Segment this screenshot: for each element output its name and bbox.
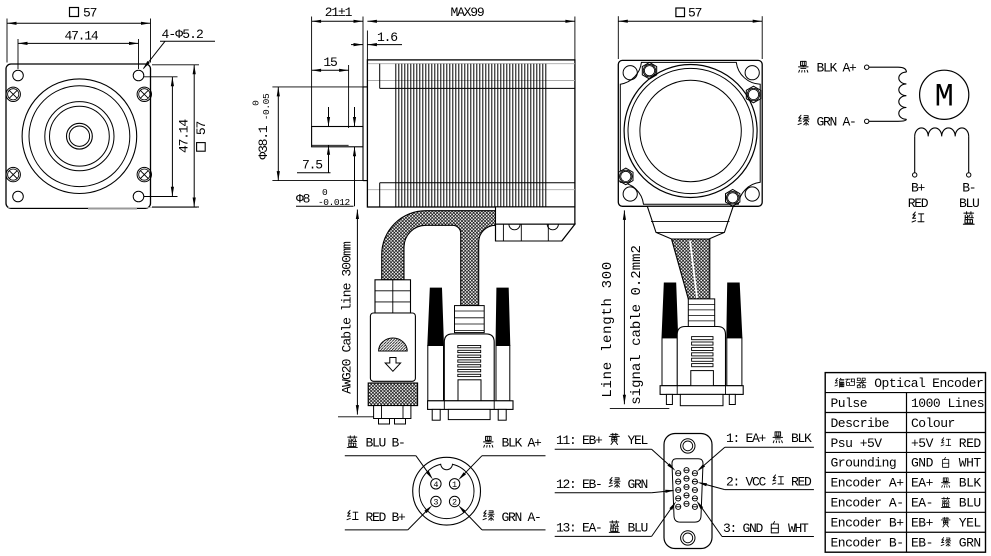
svg-text:1.6: 1.6: [377, 30, 397, 45]
svg-text:Encoder B+: Encoder B+: [831, 516, 905, 531]
svg-text:57: 57: [83, 6, 97, 21]
svg-text:2:: 2:: [726, 474, 739, 489]
svg-text:GRN: GRN: [628, 477, 648, 492]
svg-text:BLU: BLU: [959, 196, 979, 211]
svg-text:EB-: EB-: [582, 477, 602, 492]
svg-text:BLK: BLK: [817, 61, 838, 76]
svg-text:11:: 11:: [556, 433, 576, 448]
svg-text:BLK: BLK: [791, 431, 812, 446]
svg-text:+5V: +5V: [911, 436, 934, 451]
svg-text:EA-: EA-: [911, 496, 933, 511]
svg-text:A+: A+: [843, 61, 858, 76]
svg-text:A+: A+: [528, 436, 543, 451]
svg-text:B+: B+: [911, 181, 926, 196]
svg-text:EA+: EA+: [911, 476, 934, 491]
svg-text:57: 57: [688, 6, 702, 21]
svg-text:47.14: 47.14: [64, 28, 98, 43]
svg-text:1: 1: [452, 480, 457, 490]
svg-text:RED: RED: [366, 510, 387, 525]
svg-text:EA-: EA-: [582, 520, 602, 535]
svg-text:1000: 1000: [911, 396, 940, 411]
svg-text:0: 0: [251, 100, 262, 106]
svg-text:signal cable 0.2mm2: signal cable 0.2mm2: [629, 245, 645, 405]
svg-text:GRN: GRN: [959, 536, 981, 551]
svg-text:AWG20 Cable line 300mm: AWG20 Cable line 300mm: [340, 241, 355, 394]
svg-text:Encoder A+: Encoder A+: [831, 476, 905, 491]
svg-text:Describe: Describe: [831, 416, 889, 431]
svg-text:RED: RED: [908, 196, 929, 211]
svg-text:3: 3: [433, 498, 438, 508]
svg-text:Line length 300: Line length 300: [600, 261, 616, 398]
svg-text:GND: GND: [743, 521, 764, 536]
svg-text:4: 4: [433, 480, 438, 490]
svg-text:Colour: Colour: [911, 416, 955, 431]
svg-text:Psu +5V: Psu +5V: [831, 436, 883, 451]
svg-text:A-: A-: [843, 115, 856, 130]
svg-text:21±1: 21±1: [325, 5, 353, 20]
svg-text:WHT: WHT: [788, 521, 809, 536]
svg-text:EA+: EA+: [746, 431, 767, 446]
svg-text:WHT: WHT: [959, 456, 982, 471]
svg-text:Optical: Optical: [874, 376, 926, 391]
svg-text:BLU: BLU: [366, 436, 386, 451]
svg-text:3:: 3:: [723, 521, 736, 536]
svg-text:MAX99: MAX99: [450, 5, 483, 20]
svg-text:VCC: VCC: [746, 474, 767, 489]
svg-text:47.14: 47.14: [177, 119, 192, 153]
svg-text:4-Φ5.2: 4-Φ5.2: [162, 27, 204, 42]
svg-text:EB+: EB+: [582, 433, 603, 448]
svg-text:RED: RED: [959, 436, 982, 451]
svg-text:Pulse: Pulse: [831, 396, 868, 411]
svg-text:BLK: BLK: [502, 436, 523, 451]
svg-text:57: 57: [194, 122, 209, 136]
svg-text:RED: RED: [791, 474, 812, 489]
svg-text:Φ8: Φ8: [296, 192, 310, 207]
svg-text:12:: 12:: [556, 477, 576, 492]
svg-text:A-: A-: [528, 510, 541, 525]
svg-text:EB-: EB-: [911, 536, 933, 551]
svg-text:EB+: EB+: [911, 516, 934, 531]
svg-text:YEL: YEL: [959, 516, 981, 531]
svg-text:B+: B+: [392, 510, 407, 525]
svg-text:YEL: YEL: [628, 433, 648, 448]
svg-text:1:: 1:: [726, 431, 739, 446]
svg-text:BLU: BLU: [959, 496, 981, 511]
svg-text:B-: B-: [962, 181, 975, 196]
svg-text:-0.05: -0.05: [261, 93, 272, 120]
svg-text:GRN: GRN: [817, 115, 837, 130]
svg-text:Φ38.1: Φ38.1: [256, 125, 271, 159]
svg-text:Encoder B-: Encoder B-: [831, 536, 904, 551]
svg-text:Grounding: Grounding: [831, 456, 897, 471]
svg-text:B-: B-: [392, 436, 405, 451]
svg-text:7.5: 7.5: [302, 158, 322, 173]
svg-text:2: 2: [452, 498, 457, 508]
svg-text:BLU: BLU: [628, 520, 648, 535]
svg-text:Lines: Lines: [948, 396, 985, 411]
svg-text:15: 15: [323, 55, 337, 70]
svg-text:GND: GND: [911, 456, 934, 471]
svg-text:BLK: BLK: [959, 476, 982, 491]
svg-text:M: M: [935, 79, 954, 116]
svg-text:13:: 13:: [556, 520, 576, 535]
svg-text:Encoder: Encoder: [932, 376, 983, 391]
svg-text:GRN: GRN: [502, 510, 522, 525]
svg-text:Encoder A-: Encoder A-: [831, 496, 904, 511]
